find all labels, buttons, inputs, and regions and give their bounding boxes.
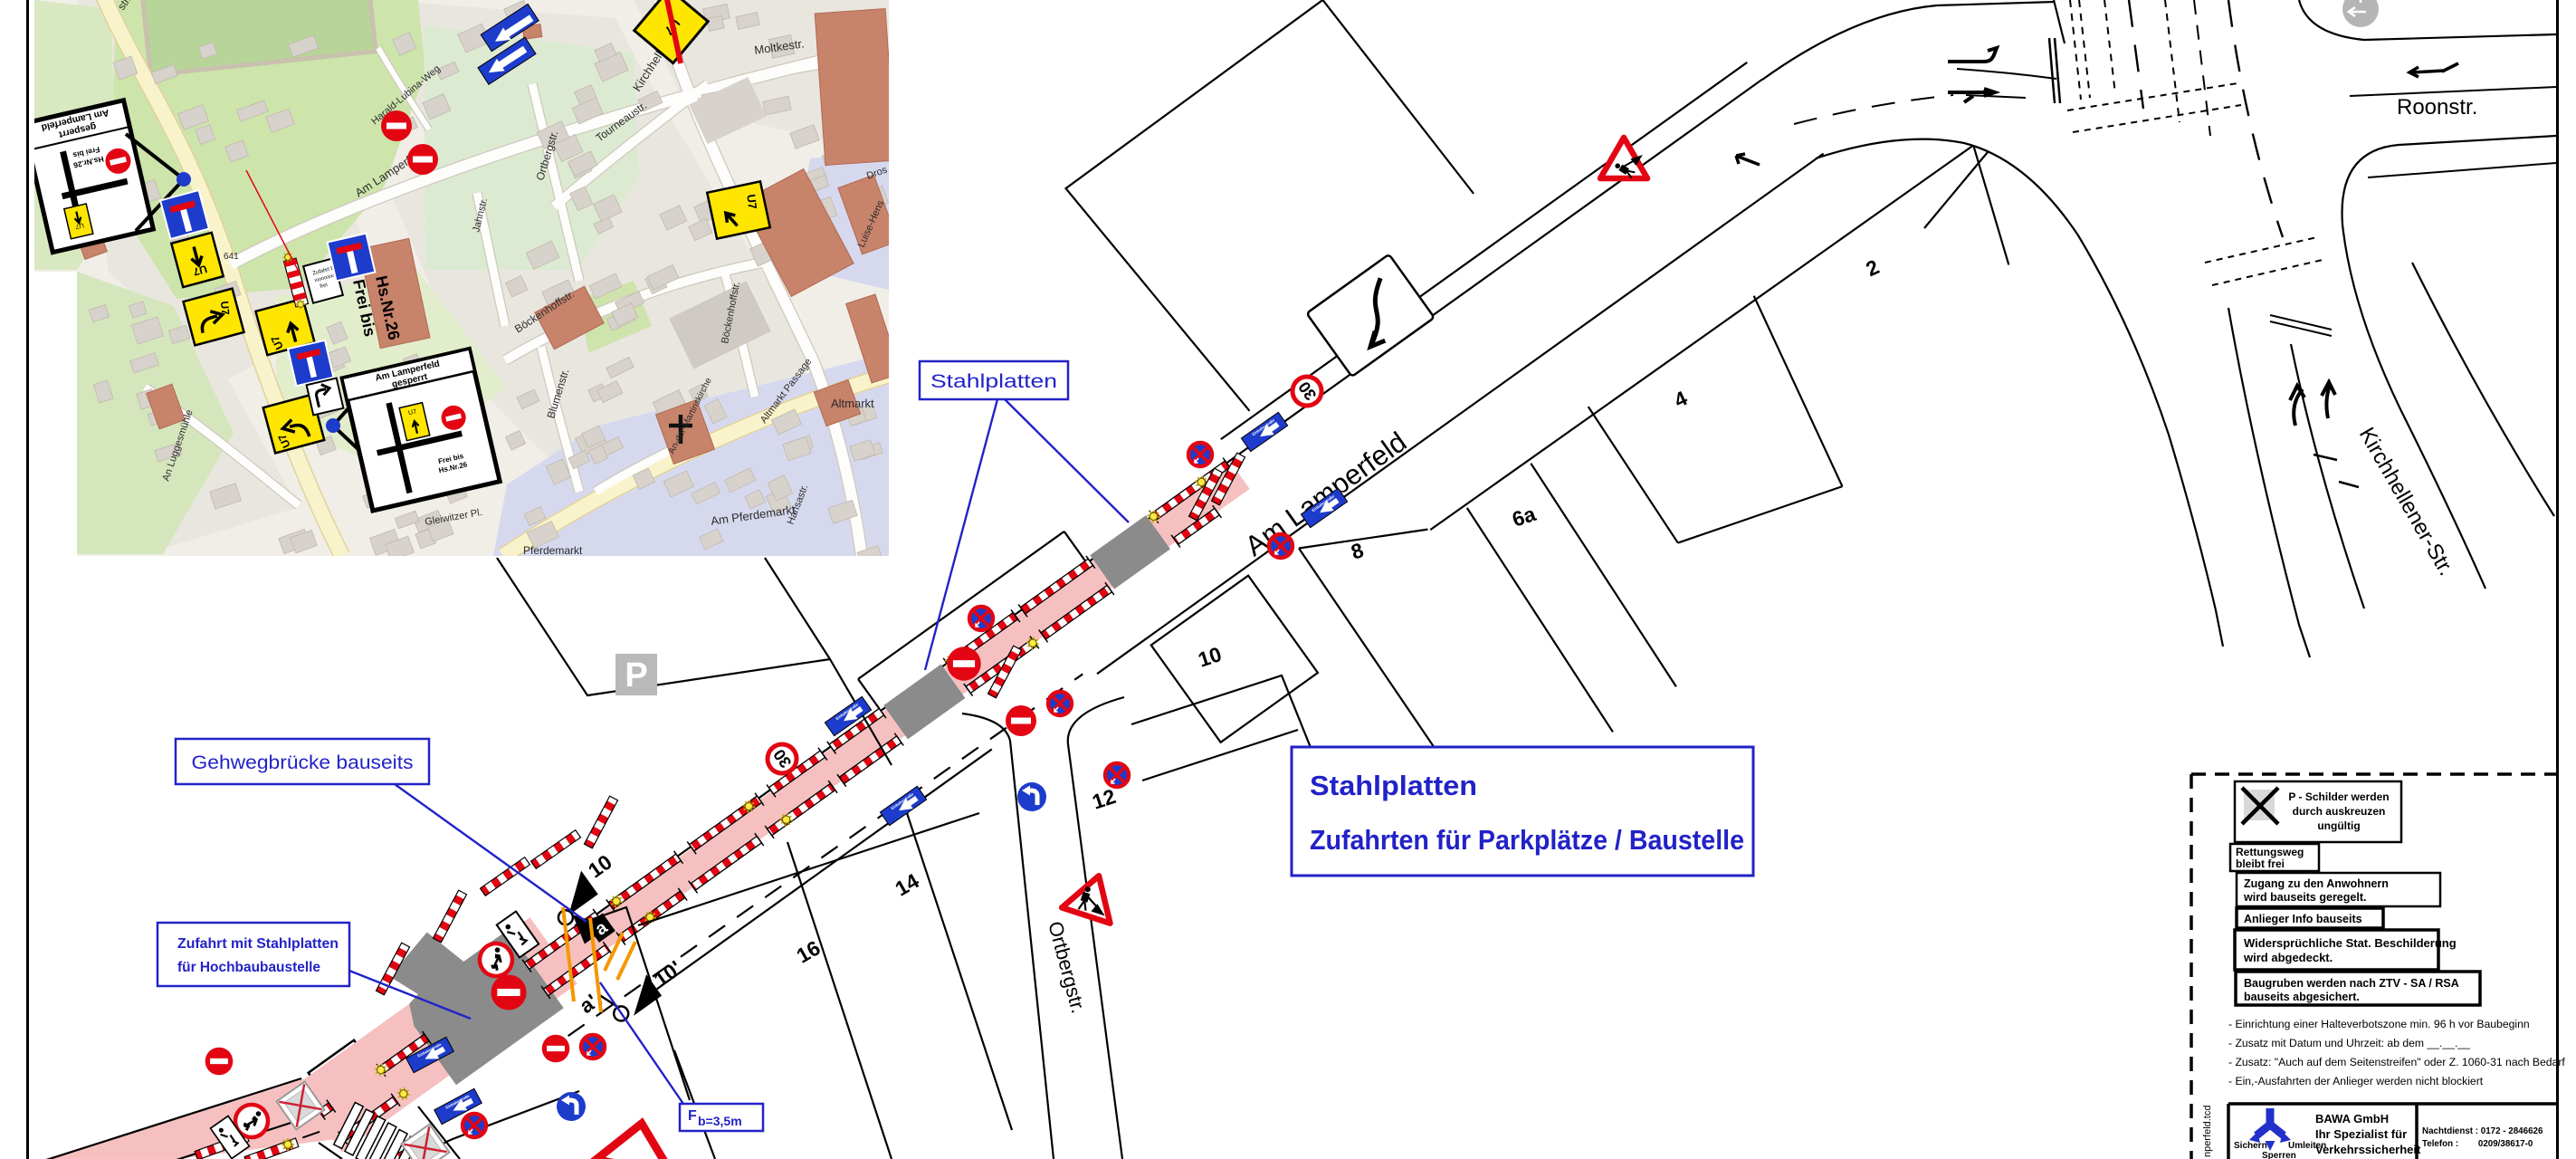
svg-text:- Ein,-Ausfahrten der Anlieger: - Ein,-Ausfahrten der Anlieger werden ni…	[2228, 1075, 2484, 1087]
svg-text:durch auskreuzen: durch auskreuzen	[2293, 805, 2386, 818]
svg-text:- Zusatz: "Auch auf dem Seiten: - Zusatz: "Auch auf dem Seitenstreifen" …	[2228, 1056, 2565, 1068]
svg-text:bleibt frei: bleibt frei	[2236, 857, 2285, 870]
svg-text:- Zusatz mit Datum und Uhrzeit: - Zusatz mit Datum und Uhrzeit: ab dem _…	[2228, 1037, 2470, 1049]
svg-text:Ihr Spezialist für: Ihr Spezialist für	[2315, 1127, 2407, 1141]
svg-text:bauseits abgesichert.: bauseits abgesichert.	[2244, 991, 2360, 1003]
svg-text:Sichern: Sichern	[2234, 1141, 2267, 1151]
svg-text:wird bauseits geregelt.: wird bauseits geregelt.	[2243, 891, 2366, 904]
svg-text:Rettungsweg: Rettungsweg	[2236, 846, 2304, 858]
svg-text:Anlieger Info bauseits: Anlieger Info bauseits	[2244, 913, 2362, 925]
svg-text:Roonstr.: Roonstr.	[2397, 95, 2477, 120]
svg-text:Nachtdienst : 0172 - 2846626: Nachtdienst : 0172 - 2846626	[2422, 1126, 2543, 1136]
svg-text:Baugruben werden nach ZTV - SA: Baugruben werden nach ZTV - SA / RSA	[2244, 977, 2459, 990]
svg-text:P - Schilder werden: P - Schilder werden	[2288, 790, 2389, 803]
svg-text:Altmarkt: Altmarkt	[831, 397, 874, 410]
svg-text:b=3,5m: b=3,5m	[698, 1114, 742, 1128]
svg-text:Stahlplatten: Stahlplatten	[1310, 770, 1477, 801]
svg-text:Verkehrssicherheit: Verkehrssicherheit	[2315, 1143, 2421, 1156]
svg-text:Widersprüchliche Stat. Beschil: Widersprüchliche Stat. Beschilderung	[2244, 936, 2457, 950]
svg-text:Sperren: Sperren	[2262, 1151, 2296, 1159]
svg-text:Pferdemarkt: Pferdemarkt	[523, 544, 583, 557]
svg-text:Gehwegbrücke bauseits: Gehwegbrücke bauseits	[192, 752, 414, 773]
svg-text:für Hochbaubaustelle: für Hochbaubaustelle	[177, 960, 320, 975]
svg-text:U7: U7	[744, 194, 759, 210]
svg-text:P: P	[625, 656, 647, 694]
svg-text:Stahlplatten: Stahlplatten	[930, 371, 1057, 392]
svg-text:Zufahrten für Parkplätze / Bau: Zufahrten für Parkplätze / Baustelle	[1310, 824, 1744, 856]
svg-text:Zugang zu den Anwohnern: Zugang zu den Anwohnern	[2244, 877, 2389, 890]
svg-text:ungültig: ungültig	[2317, 819, 2360, 832]
svg-text:- Einrichtung einer Halteverbo: - Einrichtung einer Halteverbotszone min…	[2228, 1018, 2530, 1030]
svg-text:nperfeld.tcd: nperfeld.tcd	[2202, 1106, 2213, 1157]
svg-text:Zufahrt mit Stahlplatten: Zufahrt mit Stahlplatten	[177, 936, 339, 952]
svg-text:F: F	[688, 1108, 697, 1124]
svg-text:641: 641	[224, 252, 239, 262]
svg-text:Telefon : 0209/38617-0: Telefon : 0209/38617-0	[2422, 1139, 2533, 1149]
svg-text:wird abgedeckt.: wird abgedeckt.	[2243, 951, 2333, 964]
svg-text:BAWA GmbH: BAWA GmbH	[2315, 1112, 2389, 1125]
